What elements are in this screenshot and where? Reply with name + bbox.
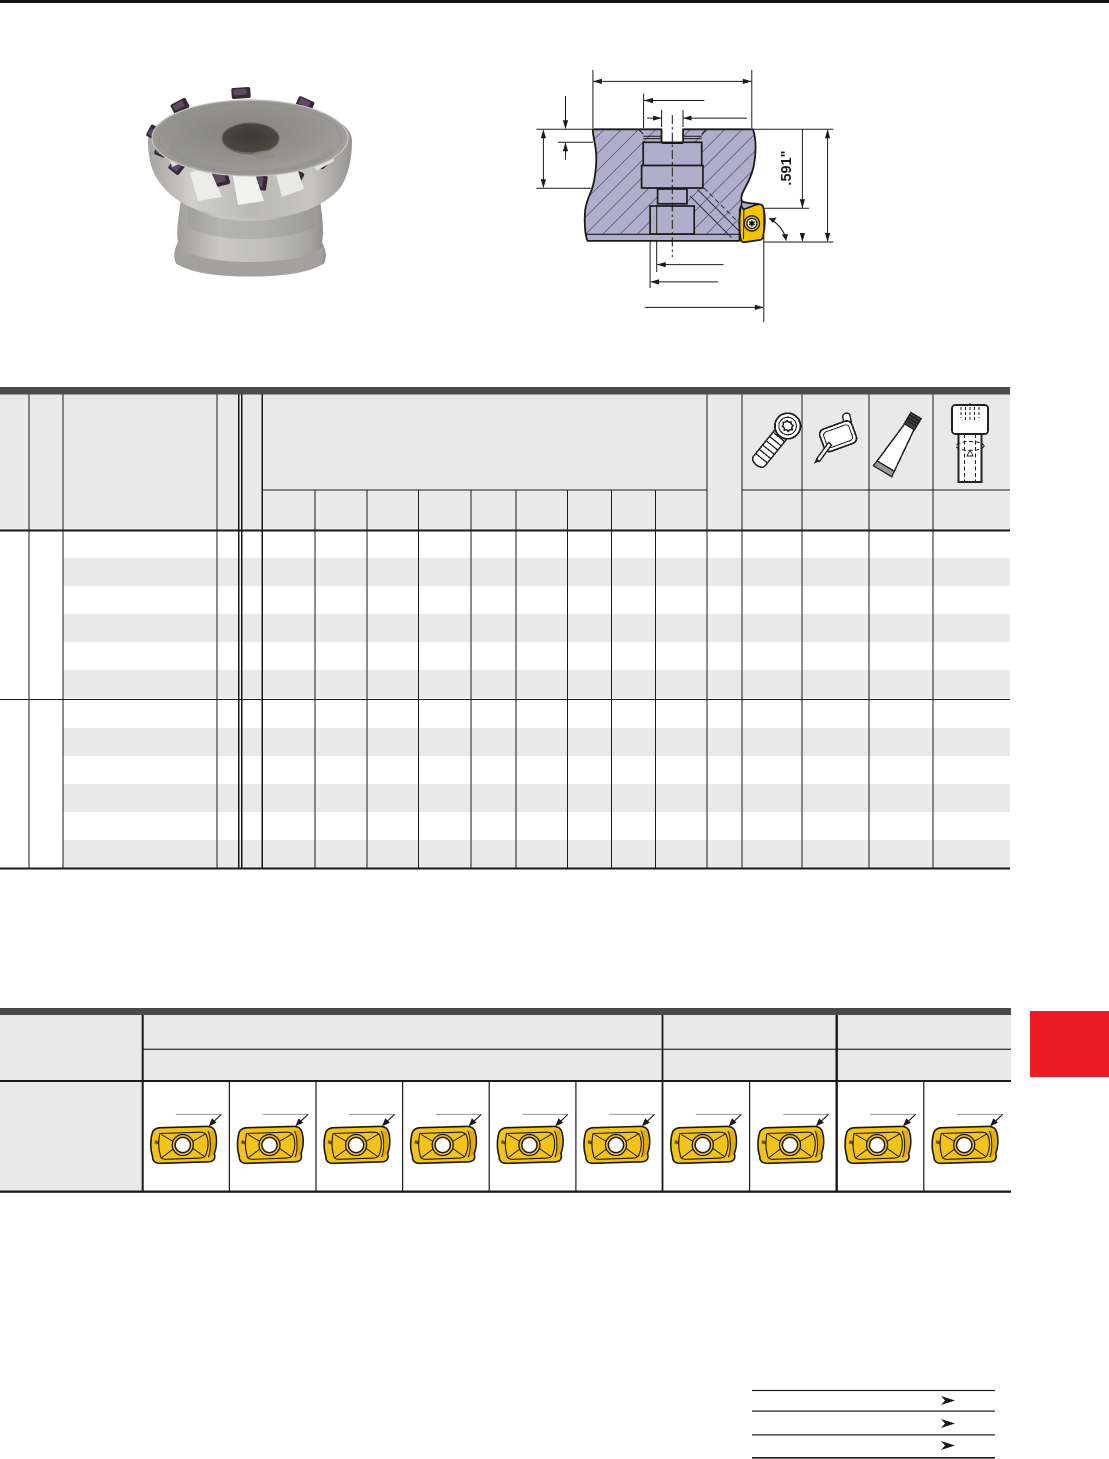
svg-text:.591": .591" — [779, 150, 795, 185]
